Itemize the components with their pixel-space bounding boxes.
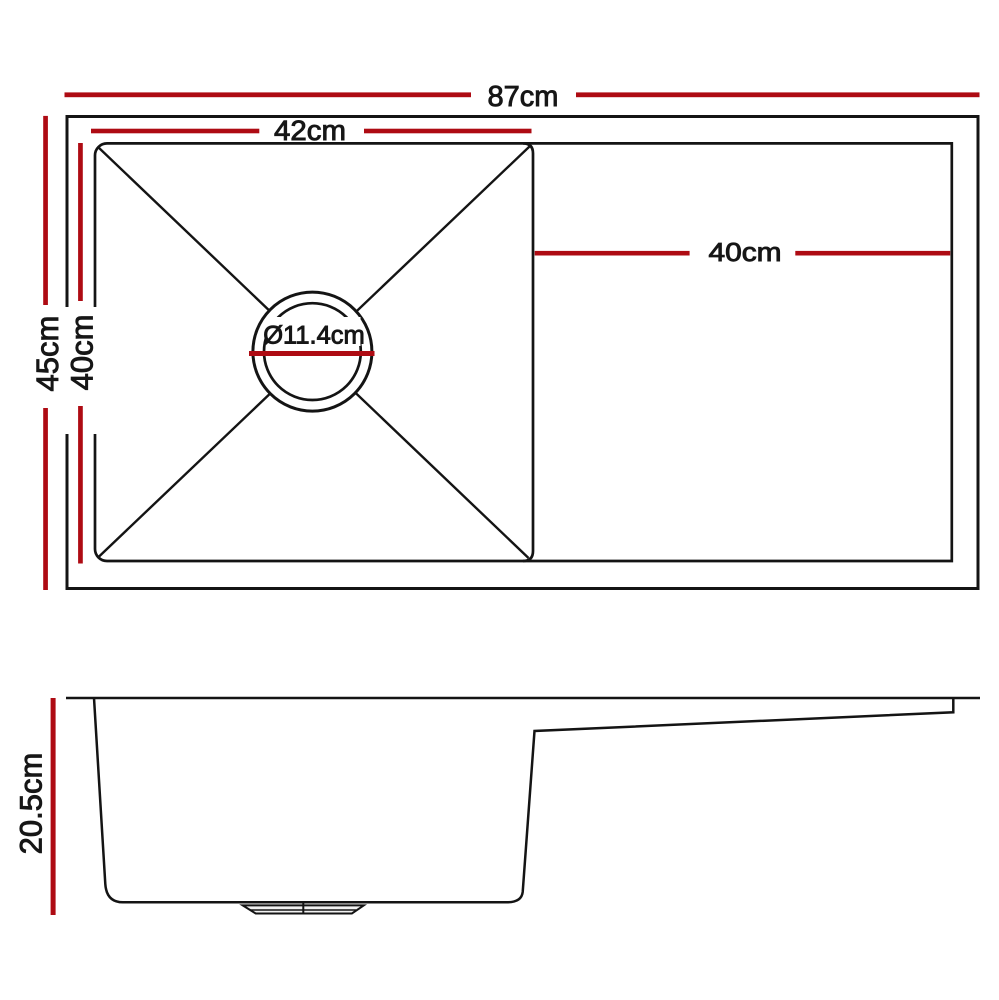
svg-text:42cm: 42cm [274, 115, 346, 146]
svg-text:40cm: 40cm [708, 237, 781, 267]
svg-text:20.5cm: 20.5cm [14, 753, 49, 855]
svg-text:45cm: 45cm [30, 316, 65, 392]
svg-text:Ø11.4cm: Ø11.4cm [263, 322, 365, 350]
svg-text:40cm: 40cm [65, 315, 100, 391]
svg-text:87cm: 87cm [488, 81, 559, 113]
